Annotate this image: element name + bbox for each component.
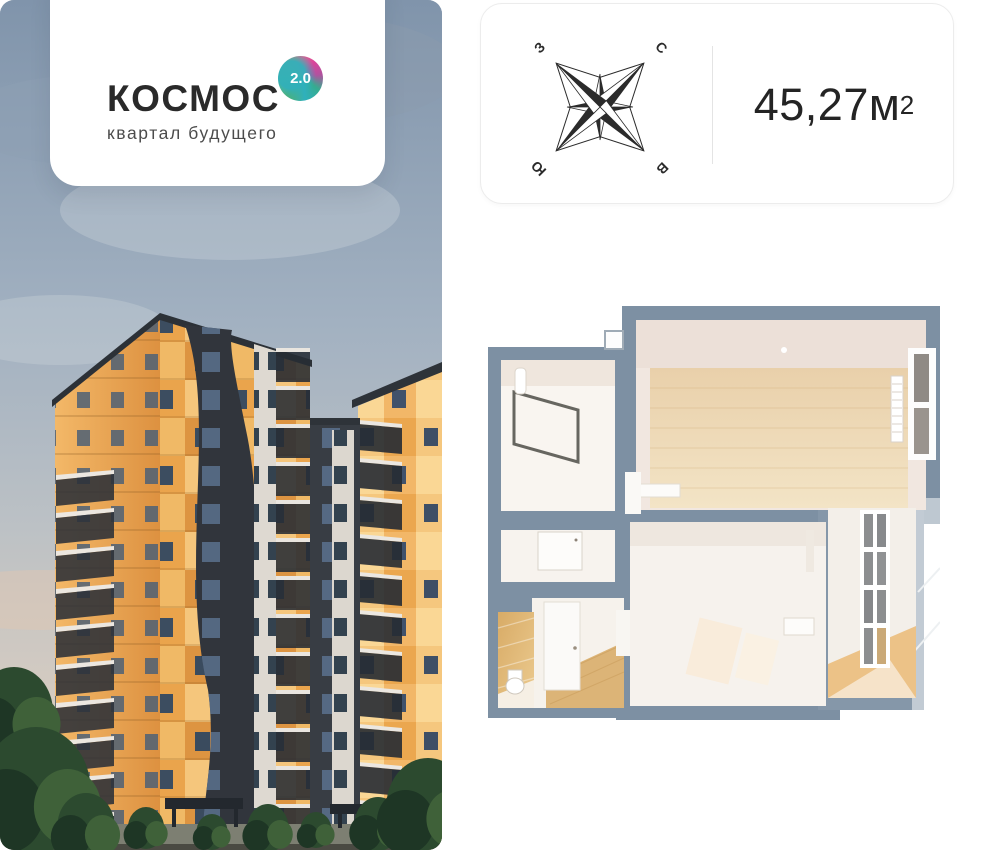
room-bedroom	[630, 522, 826, 706]
floor-plan	[488, 292, 940, 730]
room-kitchen	[501, 360, 615, 511]
compass-label-south: Ю	[528, 158, 550, 179]
compass-label-north: С	[652, 38, 670, 56]
compass-label-east: В	[653, 159, 671, 177]
floor-plan-render	[488, 292, 940, 730]
room-wardrobe	[501, 530, 615, 582]
apartment-listing-page: { "logo_card": { "title": "КОСМОС", "bad…	[0, 0, 1000, 850]
door-entry	[544, 602, 580, 690]
room-balcony	[828, 508, 916, 698]
apartment-area: 45,27м2	[713, 4, 955, 205]
logo-title: КОСМОС	[107, 80, 280, 117]
logo-card: КОСМОС 2.0 квартал будущего	[50, 0, 385, 186]
info-card: З С Ю В 45,27м2	[480, 3, 954, 204]
compass-rose-icon: З С Ю В	[525, 29, 675, 179]
compass: З С Ю В	[525, 29, 675, 179]
logo-subtitle: квартал будущего	[107, 123, 278, 144]
plan-vent-shaft	[605, 331, 623, 349]
logo-badge-text: 2.0	[290, 70, 311, 87]
room-hallway	[532, 598, 624, 708]
balcony-glazing	[860, 510, 890, 668]
room-bathroom	[498, 612, 534, 708]
area-unit: м	[869, 79, 900, 131]
toilet	[506, 670, 524, 694]
tower-left	[52, 313, 312, 850]
building-photo: КОСМОС 2.0 квартал будущего	[0, 0, 442, 850]
room-living	[636, 320, 936, 510]
logo-badge-icon: 2.0	[278, 56, 323, 101]
radiator	[891, 376, 903, 442]
compass-label-west: З	[531, 39, 549, 57]
area-value: 45,27	[754, 79, 869, 131]
